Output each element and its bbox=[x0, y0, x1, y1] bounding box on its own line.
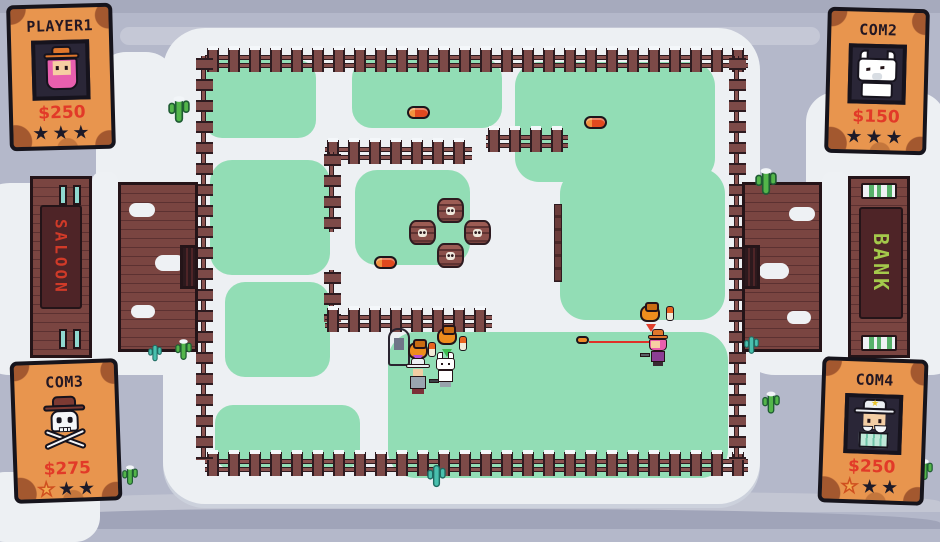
player-name: COM3 bbox=[14, 371, 115, 392]
player-card-com3: COM3 $275 ★★★ bbox=[10, 358, 123, 504]
bank-sign-text: BANK bbox=[869, 233, 893, 293]
cactus-icon bbox=[122, 464, 138, 487]
cactus-icon bbox=[762, 390, 780, 416]
star-rating: ★★★ bbox=[828, 127, 922, 148]
ammo-pickup bbox=[407, 106, 430, 119]
cactus-icon bbox=[175, 338, 192, 362]
star-filled-icon: ★ bbox=[885, 126, 906, 149]
saloon-snow-ridge bbox=[92, 172, 118, 362]
character-cowgirl bbox=[648, 329, 668, 367]
player-name: COM2 bbox=[831, 20, 925, 40]
bank-small-sign bbox=[861, 335, 897, 351]
game-viewport[interactable]: { "hud": { "players": [ { "name": "PLAYE… bbox=[0, 0, 940, 529]
background-band-top-dark bbox=[0, 0, 940, 13]
gun-icon bbox=[640, 353, 650, 357]
star-lost-icon: ★ bbox=[38, 478, 59, 501]
money-value: $150 bbox=[829, 106, 923, 128]
star-filled-icon: ★ bbox=[58, 478, 79, 501]
player-card-com2: COM2 $150 ★★★ bbox=[824, 7, 930, 156]
fired-projectile bbox=[576, 336, 589, 344]
fence-inner-upper-right bbox=[486, 128, 568, 152]
gentleman-portrait: ★ bbox=[843, 393, 903, 455]
star-filled-icon: ★ bbox=[845, 125, 866, 148]
cactus-icon bbox=[755, 166, 777, 198]
saloon-window bbox=[73, 329, 81, 349]
saloon-window bbox=[73, 185, 81, 205]
laser-sight bbox=[589, 341, 651, 343]
star-filled-icon: ★ bbox=[32, 122, 53, 145]
background-band-bottom-dark bbox=[0, 509, 940, 529]
bullet-item bbox=[459, 336, 467, 351]
saloon-sign-text: SALOON bbox=[52, 219, 71, 295]
fence-inner-left-leg-upper bbox=[324, 152, 341, 232]
saloon-window bbox=[59, 329, 67, 349]
bank-small-sign bbox=[861, 183, 897, 199]
fence-pole-center bbox=[554, 204, 562, 282]
barrel bbox=[437, 243, 464, 268]
cowgirl-portrait bbox=[31, 39, 91, 100]
skull-portrait bbox=[36, 395, 96, 457]
fence-inner-lower bbox=[325, 308, 492, 332]
character-old-man bbox=[406, 358, 430, 396]
ammo-pickup bbox=[374, 256, 397, 269]
bullet-item bbox=[666, 306, 674, 321]
saloon-building: SALOON bbox=[30, 172, 198, 362]
cactus-icon bbox=[168, 94, 190, 126]
saloon-roof bbox=[118, 182, 198, 352]
star-rating: ★★★ bbox=[18, 478, 119, 500]
star-filled-icon: ★ bbox=[865, 126, 886, 149]
saloon-window bbox=[59, 185, 67, 205]
ammo-pickup bbox=[584, 116, 607, 129]
money-bag-icon bbox=[437, 328, 457, 345]
barrel bbox=[437, 198, 464, 223]
cactus-icon bbox=[427, 462, 446, 490]
grass-patch bbox=[225, 282, 330, 377]
star-lost-icon: ★ bbox=[841, 475, 862, 498]
player-name: COM4 bbox=[825, 369, 924, 390]
star-filled-icon: ★ bbox=[52, 122, 73, 145]
star-rating: ★★★ bbox=[13, 123, 111, 145]
barrel bbox=[464, 220, 491, 245]
bank-roof bbox=[742, 182, 822, 352]
bullet-item bbox=[428, 342, 436, 357]
saloon-sign: SALOON bbox=[40, 205, 82, 309]
cactus-icon bbox=[744, 334, 759, 356]
star-rating: ★★★ bbox=[822, 476, 921, 498]
bank-building: BANK bbox=[742, 172, 910, 362]
star-filled-icon: ★ bbox=[881, 476, 902, 499]
barrel bbox=[409, 220, 436, 245]
money-bag-icon bbox=[640, 305, 660, 322]
player-card-com4: COM4 ★ $250 ★★★ bbox=[817, 356, 928, 506]
money-value: $250 bbox=[13, 102, 111, 125]
bank-door bbox=[742, 245, 760, 289]
grass-patch bbox=[210, 160, 330, 275]
bank-snow-ridge bbox=[822, 172, 848, 362]
star-filled-icon: ★ bbox=[72, 121, 93, 144]
grass-patch bbox=[560, 168, 725, 320]
bank-sign: BANK bbox=[859, 207, 903, 319]
player-card-player1: PLAYER1 $250 ★★★ bbox=[6, 3, 116, 152]
fence-inner-upper-left bbox=[325, 140, 472, 164]
saloon-door bbox=[180, 245, 198, 289]
fence-left-border bbox=[196, 56, 213, 460]
player-name: PLAYER1 bbox=[10, 16, 108, 37]
cactus-icon bbox=[148, 343, 162, 363]
star-filled-icon: ★ bbox=[78, 477, 99, 500]
star-filled-icon: ★ bbox=[861, 476, 882, 499]
grass-patch bbox=[515, 62, 715, 182]
character-wolf bbox=[436, 352, 455, 388]
wolf-portrait bbox=[847, 43, 907, 104]
fence-top-border bbox=[205, 48, 748, 72]
fence-bottom-border bbox=[205, 452, 748, 476]
